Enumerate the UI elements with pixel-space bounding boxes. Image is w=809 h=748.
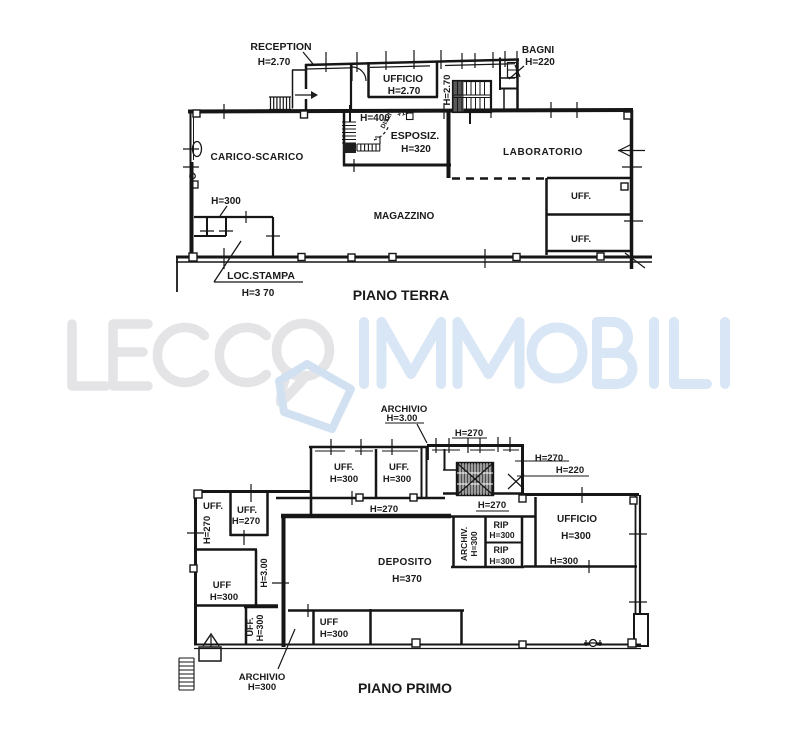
svg-text:H=300: H=300 bbox=[469, 531, 479, 557]
svg-text:H=300: H=300 bbox=[561, 531, 591, 542]
svg-text:BAGNI: BAGNI bbox=[522, 45, 554, 56]
svg-text:H=320: H=320 bbox=[401, 144, 431, 155]
svg-text:H=300: H=300 bbox=[550, 556, 578, 567]
svg-text:PIANO TERRA: PIANO TERRA bbox=[353, 287, 449, 303]
svg-text:H=3.00: H=3.00 bbox=[387, 413, 418, 424]
svg-text:H=2.70: H=2.70 bbox=[388, 86, 421, 97]
svg-text:H=270: H=270 bbox=[232, 516, 260, 527]
svg-text:LOC.STAMPA: LOC.STAMPA bbox=[227, 270, 295, 282]
svg-text:MAGAZZINO: MAGAZZINO bbox=[374, 211, 435, 222]
svg-text:DEPOSITO: DEPOSITO bbox=[378, 557, 432, 568]
svg-text:H=3.00: H=3.00 bbox=[259, 558, 269, 587]
svg-text:UFFICIO: UFFICIO bbox=[383, 74, 423, 85]
svg-text:UFF.: UFF. bbox=[203, 501, 223, 512]
svg-text:H=370: H=370 bbox=[392, 574, 422, 585]
svg-text:H=300: H=300 bbox=[255, 615, 265, 642]
svg-text:H=270: H=270 bbox=[370, 504, 398, 515]
svg-text:CARICO-SCARICO: CARICO-SCARICO bbox=[210, 152, 303, 163]
svg-text:H=270: H=270 bbox=[202, 516, 213, 544]
svg-text:UFF.: UFF. bbox=[389, 462, 409, 473]
svg-text:RIP: RIP bbox=[493, 520, 508, 530]
svg-text:H=300: H=300 bbox=[383, 474, 411, 485]
svg-text:PIANO PRIMO: PIANO PRIMO bbox=[358, 680, 452, 696]
svg-text:H=300: H=300 bbox=[210, 592, 238, 603]
svg-text:H=300: H=300 bbox=[248, 682, 276, 693]
svg-text:H=270: H=270 bbox=[535, 453, 563, 464]
svg-text:UFF.: UFF. bbox=[571, 234, 591, 245]
svg-text:H=270: H=270 bbox=[455, 428, 483, 439]
svg-text:H=220: H=220 bbox=[525, 57, 555, 68]
svg-text:H=300: H=300 bbox=[489, 530, 515, 540]
svg-text:UFF.: UFF. bbox=[237, 505, 257, 516]
svg-text:H=2.70: H=2.70 bbox=[442, 75, 453, 106]
svg-text:UFF.: UFF. bbox=[334, 462, 354, 473]
svg-text:H=300: H=300 bbox=[489, 556, 515, 566]
svg-text:UFF: UFF bbox=[320, 617, 339, 628]
svg-text:H=2.70: H=2.70 bbox=[258, 57, 291, 68]
svg-text:LABORATORIO: LABORATORIO bbox=[503, 147, 583, 158]
svg-text:ARCHIV.: ARCHIV. bbox=[459, 527, 469, 561]
svg-text:H=3 70: H=3 70 bbox=[242, 288, 275, 299]
svg-text:ESPOSIZ.: ESPOSIZ. bbox=[391, 130, 440, 142]
svg-text:UFF: UFF bbox=[213, 580, 232, 591]
svg-text:UFF.: UFF. bbox=[245, 618, 255, 637]
svg-text:H=220: H=220 bbox=[556, 465, 584, 476]
svg-text:H=300: H=300 bbox=[320, 629, 348, 640]
svg-text:UFF.: UFF. bbox=[571, 191, 591, 202]
svg-text:H=300: H=300 bbox=[330, 474, 358, 485]
svg-text:UFFICIO: UFFICIO bbox=[557, 514, 597, 525]
svg-text:H=300: H=300 bbox=[211, 196, 241, 207]
svg-text:RIP: RIP bbox=[493, 545, 508, 555]
svg-text:RECEPTION: RECEPTION bbox=[250, 41, 311, 53]
svg-text:H=270: H=270 bbox=[478, 500, 506, 511]
